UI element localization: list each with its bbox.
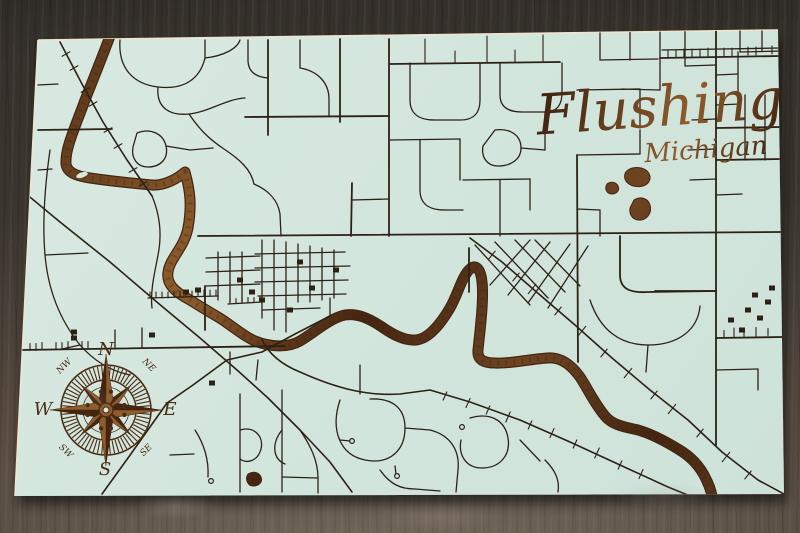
compass-label-south: S	[99, 459, 111, 480]
compass-label-west: W	[34, 399, 54, 420]
compass-label-north: N	[97, 339, 115, 360]
wood-map-artwork: N E S W NW NE SE SW Flushing Michigan	[0, 0, 800, 533]
compass-label-east: E	[162, 399, 176, 420]
